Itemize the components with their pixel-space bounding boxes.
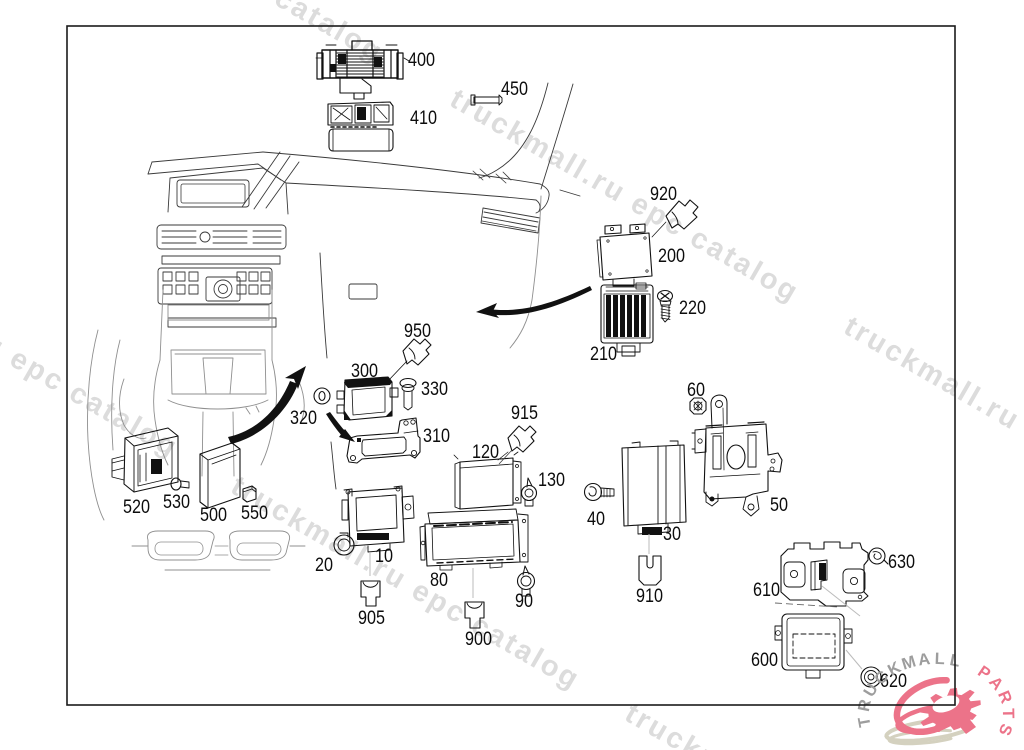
svg-text:210: 210 — [590, 343, 617, 365]
svg-text:220: 220 — [679, 297, 706, 319]
svg-text:530: 530 — [163, 491, 190, 513]
svg-text:A: A — [917, 650, 931, 669]
svg-text:600: 600 — [751, 649, 778, 671]
svg-text:L: L — [934, 650, 945, 668]
svg-text:915: 915 — [511, 402, 538, 424]
svg-text:130: 130 — [538, 469, 565, 491]
svg-text:900: 900 — [465, 628, 492, 650]
svg-text:T: T — [999, 708, 1017, 718]
svg-text:330: 330 — [421, 378, 448, 400]
svg-text:20: 20 — [315, 554, 333, 576]
svg-text:50: 50 — [770, 494, 788, 516]
svg-text:30: 30 — [663, 523, 681, 545]
svg-text:610: 610 — [753, 579, 780, 601]
svg-text:500: 500 — [200, 504, 227, 526]
svg-text:400: 400 — [408, 49, 435, 71]
svg-text:120: 120 — [472, 441, 499, 463]
svg-text:320: 320 — [290, 407, 317, 429]
svg-text:10: 10 — [375, 545, 393, 567]
svg-text:300: 300 — [351, 360, 378, 382]
svg-text:310: 310 — [423, 425, 450, 447]
svg-text:630: 630 — [888, 551, 915, 573]
svg-text:520: 520 — [123, 496, 150, 518]
svg-text:80: 80 — [430, 569, 448, 591]
svg-text:90: 90 — [515, 590, 533, 612]
svg-text:200: 200 — [658, 245, 685, 267]
svg-text:410: 410 — [410, 107, 437, 129]
svg-text:450: 450 — [501, 78, 528, 100]
svg-text:60: 60 — [687, 379, 705, 401]
svg-text:905: 905 — [358, 607, 385, 629]
svg-text:920: 920 — [650, 183, 677, 205]
svg-text:550: 550 — [241, 502, 268, 524]
svg-text:40: 40 — [587, 508, 605, 530]
svg-text:950: 950 — [404, 320, 431, 342]
svg-text:910: 910 — [636, 585, 663, 607]
